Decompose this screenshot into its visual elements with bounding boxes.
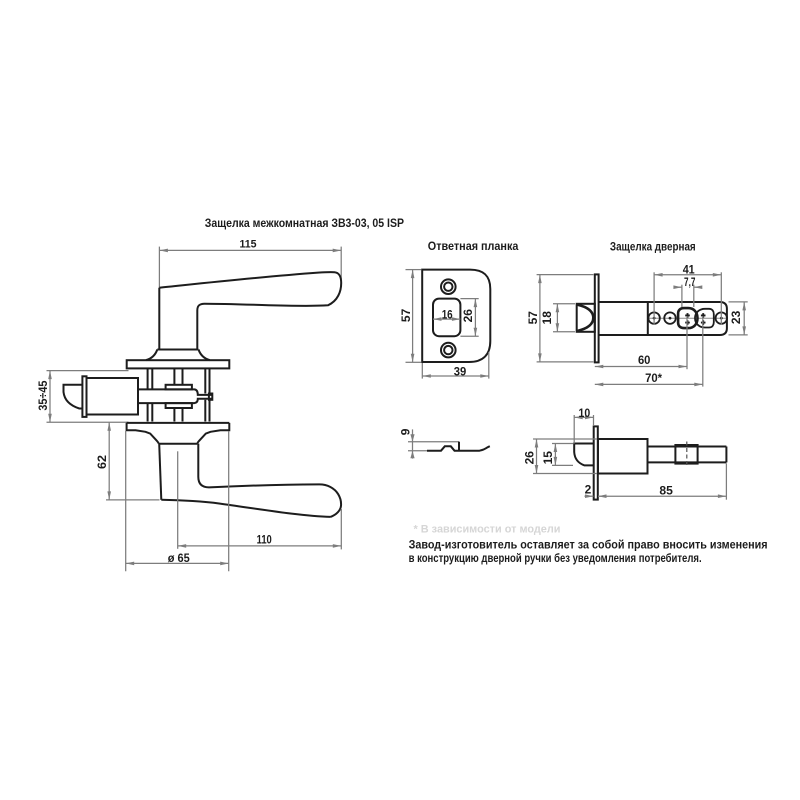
svg-text:Ответная планка: Ответная планка [428, 239, 519, 253]
svg-text:в конструкцию дверной ручки бе: в конструкцию дверной ручки без уведомле… [409, 551, 702, 565]
svg-text:26: 26 [461, 309, 475, 323]
svg-text:18: 18 [540, 311, 554, 325]
svg-text:10: 10 [579, 406, 591, 420]
svg-text:Защелка дверная: Защелка дверная [610, 240, 696, 254]
svg-text:85: 85 [659, 483, 673, 497]
svg-text:110: 110 [257, 533, 272, 547]
svg-text:26: 26 [522, 451, 536, 465]
svg-text:35÷45: 35÷45 [36, 380, 50, 410]
svg-text:70*: 70* [645, 371, 662, 385]
svg-text:ø 65: ø 65 [168, 551, 190, 565]
svg-text:15: 15 [541, 451, 555, 465]
svg-text:9: 9 [398, 428, 412, 435]
svg-text:* В зависимости от модели: * В зависимости от модели [414, 523, 561, 535]
svg-text:Защелка межкомнатная ЗВ3-03, 0: Защелка межкомнатная ЗВ3-03, 05 ISP [205, 216, 404, 230]
svg-text:62: 62 [95, 455, 109, 469]
svg-text:57: 57 [526, 311, 540, 325]
svg-text:57: 57 [399, 308, 413, 322]
svg-text:Завод-изготовитель оставляет з: Завод-изготовитель оставляет за собой пр… [409, 537, 768, 551]
svg-text:39: 39 [454, 364, 467, 378]
svg-text:115: 115 [239, 238, 256, 250]
svg-text:16: 16 [442, 307, 453, 321]
svg-text:7,7: 7,7 [684, 275, 696, 289]
svg-text:2: 2 [585, 483, 592, 497]
svg-text:60: 60 [638, 353, 651, 367]
svg-text:41: 41 [683, 262, 695, 276]
svg-text:23: 23 [729, 310, 743, 324]
